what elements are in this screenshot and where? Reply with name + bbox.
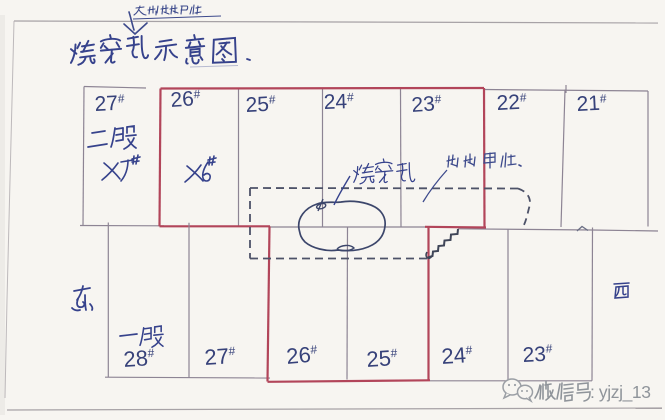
svg-text:: yjzj_13: : yjzj_13 xyxy=(590,382,651,403)
